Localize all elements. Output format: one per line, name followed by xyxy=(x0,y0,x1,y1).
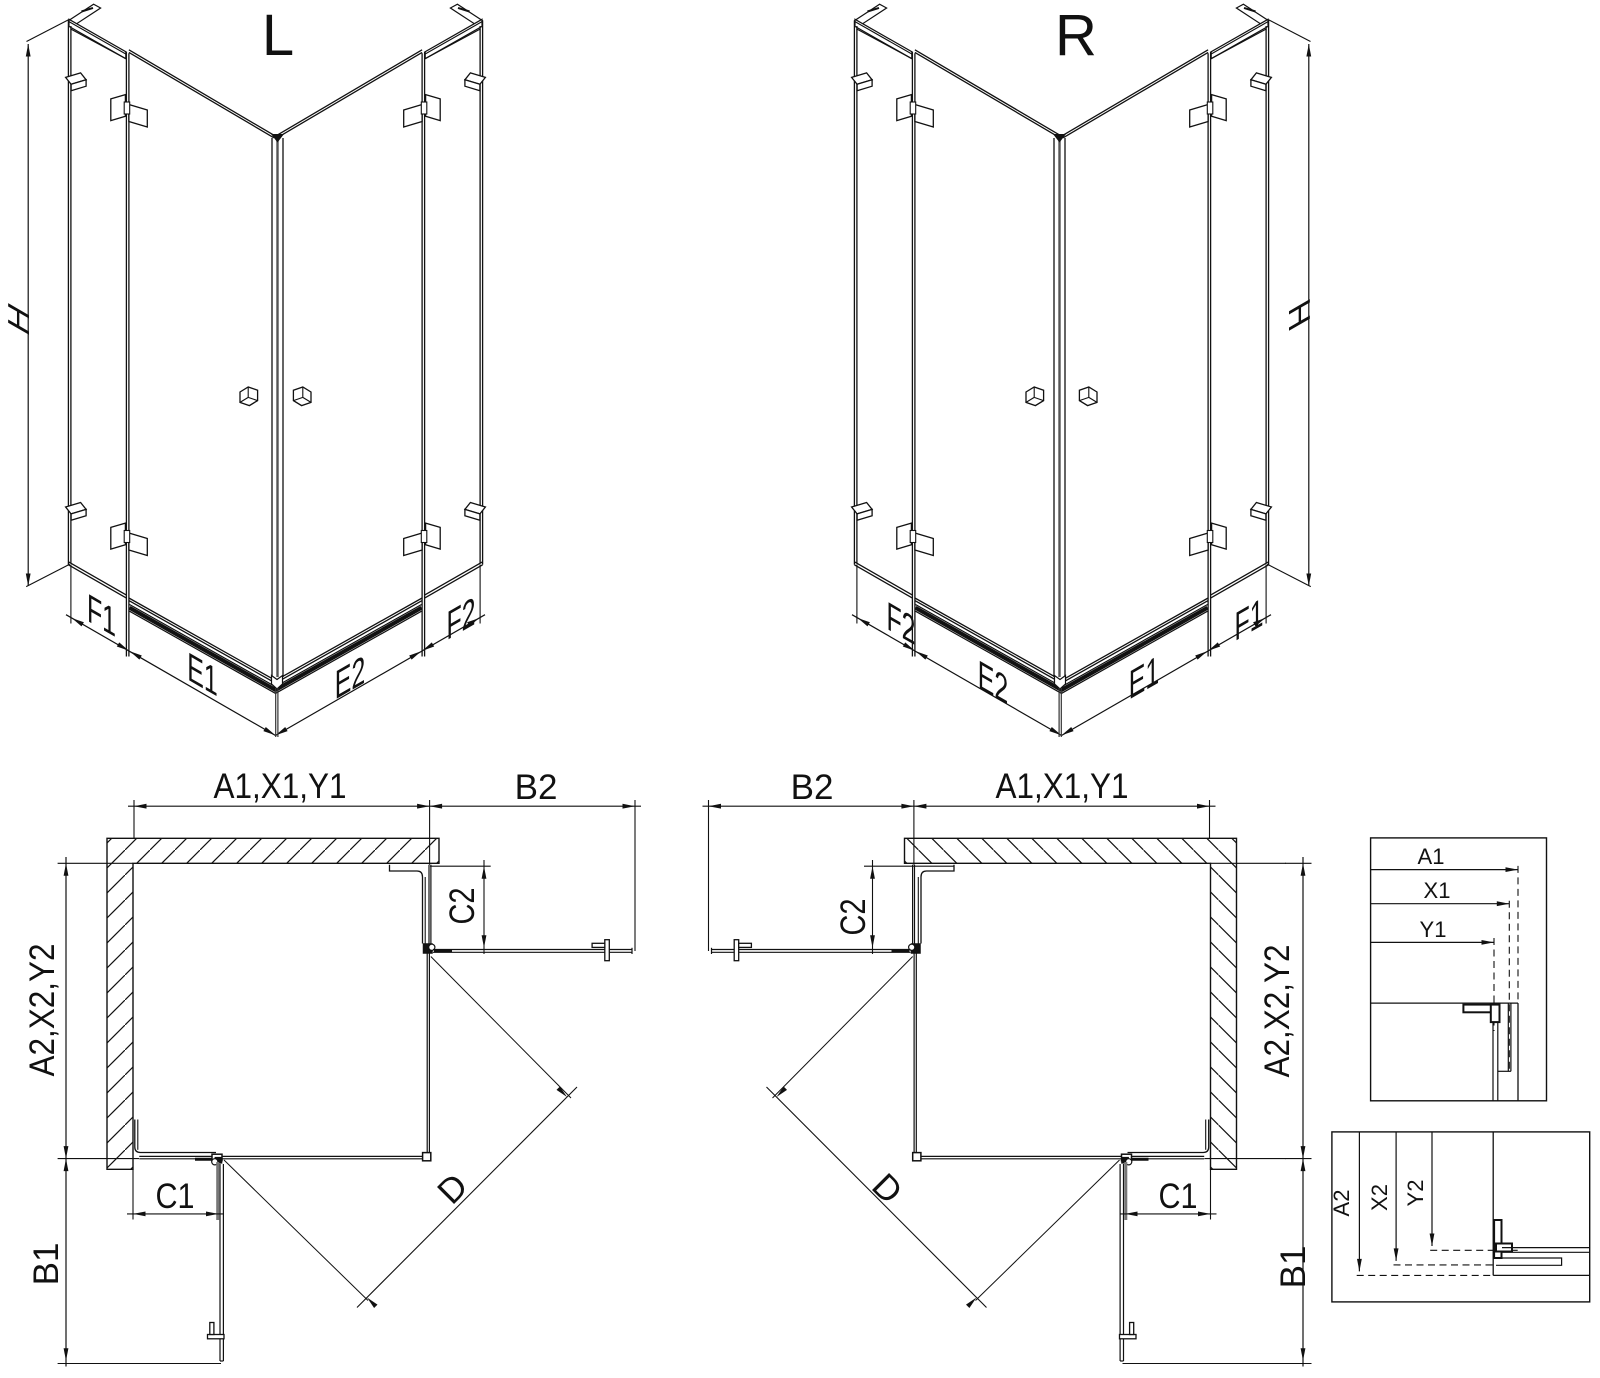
svg-text:Y1: Y1 xyxy=(1420,917,1447,942)
svg-text:B1: B1 xyxy=(1274,1246,1313,1289)
svg-text:X1: X1 xyxy=(1424,878,1451,903)
svg-text:A2: A2 xyxy=(1329,1190,1354,1217)
svg-text:Y2: Y2 xyxy=(1403,1180,1428,1207)
svg-text:B2: B2 xyxy=(515,768,558,807)
svg-text:C1: C1 xyxy=(156,1177,195,1216)
svg-text:C1: C1 xyxy=(1159,1177,1198,1216)
svg-text:C2: C2 xyxy=(834,899,873,936)
svg-text:X2: X2 xyxy=(1367,1184,1392,1211)
svg-text:A2,X2,Y2: A2,X2,Y2 xyxy=(1258,945,1297,1078)
svg-text:A1: A1 xyxy=(1418,844,1445,869)
svg-text:L: L xyxy=(262,3,294,68)
svg-text:B2: B2 xyxy=(791,768,834,807)
svg-text:A2,X2,Y2: A2,X2,Y2 xyxy=(23,944,62,1077)
svg-text:B1: B1 xyxy=(27,1243,66,1286)
svg-text:R: R xyxy=(1055,3,1097,68)
svg-text:C2: C2 xyxy=(443,888,482,925)
svg-text:A1,X1,Y1: A1,X1,Y1 xyxy=(214,767,347,806)
svg-text:A1,X1,Y1: A1,X1,Y1 xyxy=(996,767,1129,806)
